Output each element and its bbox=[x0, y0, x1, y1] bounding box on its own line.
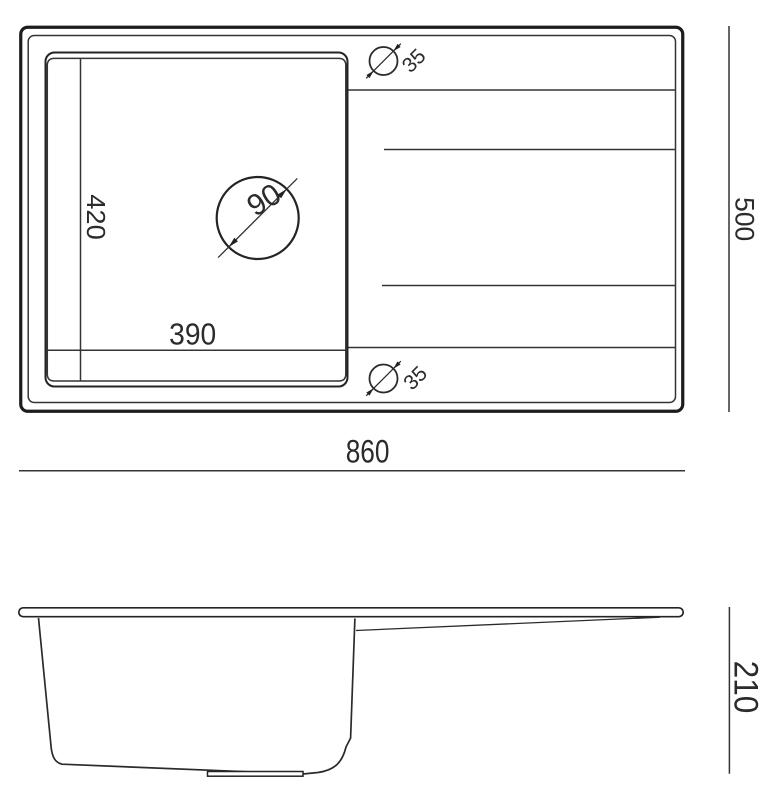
svg-text:860: 860 bbox=[346, 435, 390, 470]
svg-text:420: 420 bbox=[81, 194, 110, 240]
svg-text:210: 210 bbox=[727, 661, 765, 714]
svg-text:500: 500 bbox=[730, 197, 760, 241]
svg-text:390: 390 bbox=[169, 317, 216, 352]
